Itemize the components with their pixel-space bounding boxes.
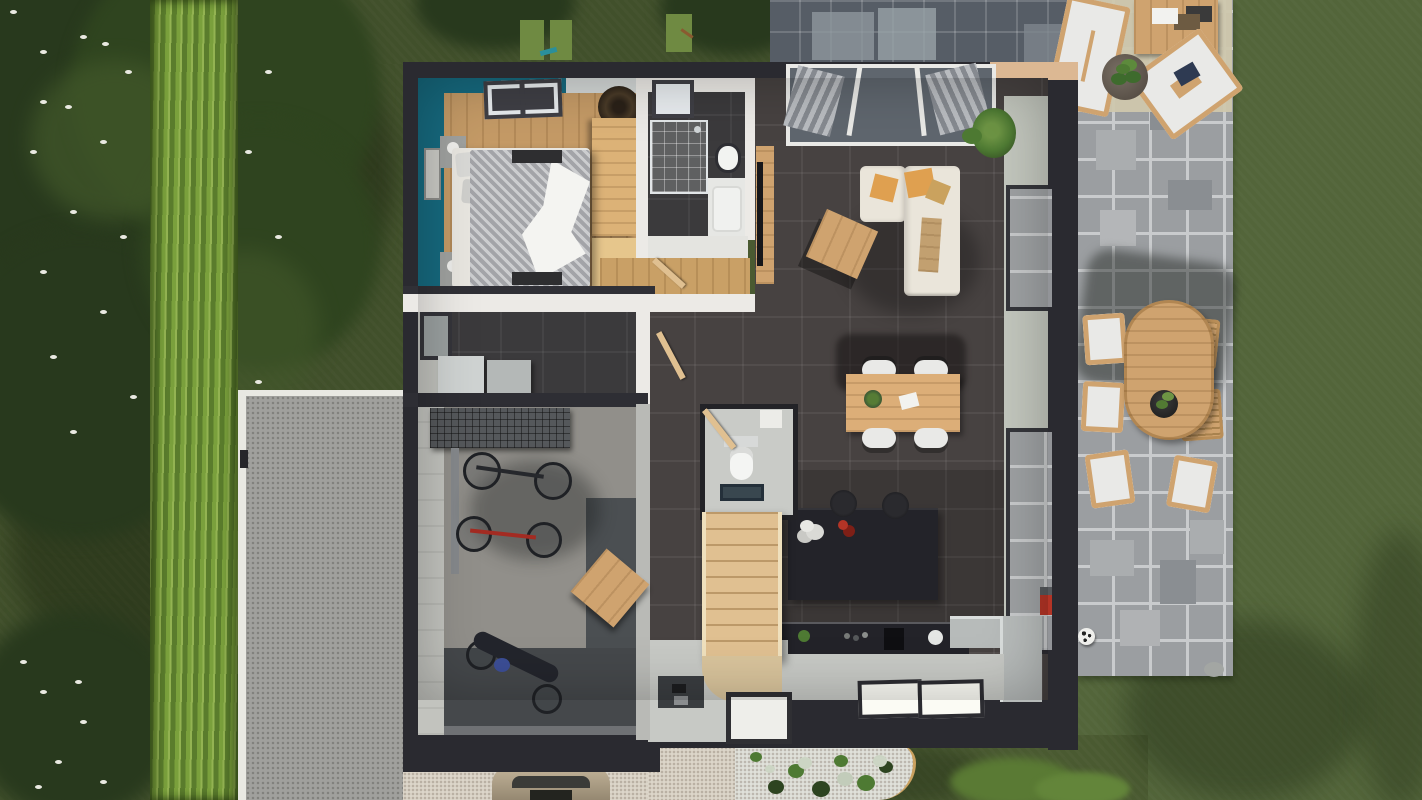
garden-chair — [1166, 455, 1218, 514]
toy-truck — [1040, 595, 1052, 615]
table-tray — [1152, 8, 1178, 24]
tv — [757, 162, 763, 266]
bed-plants-green — [750, 752, 762, 762]
shoe-item — [672, 684, 686, 693]
washbasin — [718, 146, 738, 170]
tree-blossoms — [20, 660, 27, 664]
paver-patch — [1090, 540, 1134, 576]
bike-rack-rail — [451, 448, 459, 574]
moto-tank — [494, 658, 510, 672]
outdoor-dining-table — [1124, 300, 1214, 440]
planting-bed — [735, 744, 916, 800]
partition-wall-white — [403, 294, 755, 312]
patio-top-light-patch — [812, 12, 874, 60]
utility-garage-wall — [403, 393, 648, 407]
dining-chair — [914, 428, 948, 448]
coffee-machine — [884, 628, 904, 650]
paver-patch — [1190, 520, 1224, 554]
boulder — [1204, 662, 1224, 677]
entry-doormat — [726, 692, 792, 744]
football — [1078, 628, 1095, 645]
garage-door-edge — [444, 726, 636, 735]
glass-door — [1006, 185, 1056, 311]
roof-window — [858, 679, 923, 719]
wc-mat — [720, 484, 764, 501]
paver-patch — [1096, 130, 1136, 170]
bar-stool — [830, 490, 857, 517]
wire-shelving — [430, 408, 570, 448]
bedroom-bath-wall — [636, 78, 648, 284]
bar-stool — [882, 492, 909, 519]
garage-hall-wall — [636, 404, 650, 740]
staircase — [702, 512, 782, 660]
garage-wall-bottom — [403, 735, 660, 772]
dining-chair — [862, 428, 896, 448]
partition-wall — [403, 286, 655, 294]
utility-window — [420, 312, 452, 360]
tree-blossoms — [10, 10, 17, 14]
patio-top-light-patch — [878, 8, 936, 60]
window-bench — [1000, 616, 1042, 702]
table-plant — [864, 390, 882, 408]
washer — [438, 356, 484, 396]
gate-post — [240, 450, 248, 468]
wc-corner-shelf — [760, 410, 782, 428]
bush — [1035, 772, 1130, 800]
counter-bottles — [844, 633, 850, 639]
wardrobe — [592, 118, 636, 236]
hedge-row — [150, 0, 238, 800]
bedside-rug — [512, 272, 562, 285]
bath-ledge — [648, 236, 748, 260]
paver-patch — [1168, 180, 1212, 210]
potted-plant-leaf — [962, 128, 982, 144]
garden-chair — [1081, 381, 1126, 433]
island-flowers — [800, 520, 814, 532]
garden-patch — [550, 20, 572, 60]
roof-window — [652, 80, 694, 118]
planter-leaves — [1162, 392, 1174, 401]
kettle — [928, 630, 943, 645]
pot-plant-leaves — [1116, 64, 1130, 74]
bedside-rug — [512, 150, 562, 163]
floor-plan-scene — [0, 0, 1422, 800]
roof-window — [918, 679, 985, 719]
front-walk — [648, 742, 748, 800]
garage-wall-face — [418, 407, 444, 735]
garden-chair — [1082, 313, 1127, 366]
hall-west-wall — [636, 312, 650, 404]
counter-plant — [798, 630, 810, 642]
bath-right-wall — [745, 78, 755, 240]
sofa-throw — [918, 217, 942, 272]
moto-wheel — [532, 684, 562, 714]
paver-patch — [1100, 210, 1136, 246]
toilet — [730, 447, 753, 480]
shower-head — [694, 126, 701, 133]
island-flowers-red — [838, 520, 848, 530]
paver-patch — [1160, 560, 1196, 604]
driveway — [246, 396, 403, 800]
wall-picture — [424, 148, 441, 200]
garden-chair — [1084, 449, 1135, 509]
shower-tray — [712, 186, 742, 232]
bed-plants-silver — [765, 765, 775, 773]
bike-wheel — [526, 522, 562, 558]
plant-pot — [1102, 54, 1148, 100]
bike-wheel — [534, 462, 572, 500]
paver-patch — [1120, 610, 1160, 646]
car-windshield — [512, 776, 590, 788]
car-sunroof — [530, 790, 572, 800]
